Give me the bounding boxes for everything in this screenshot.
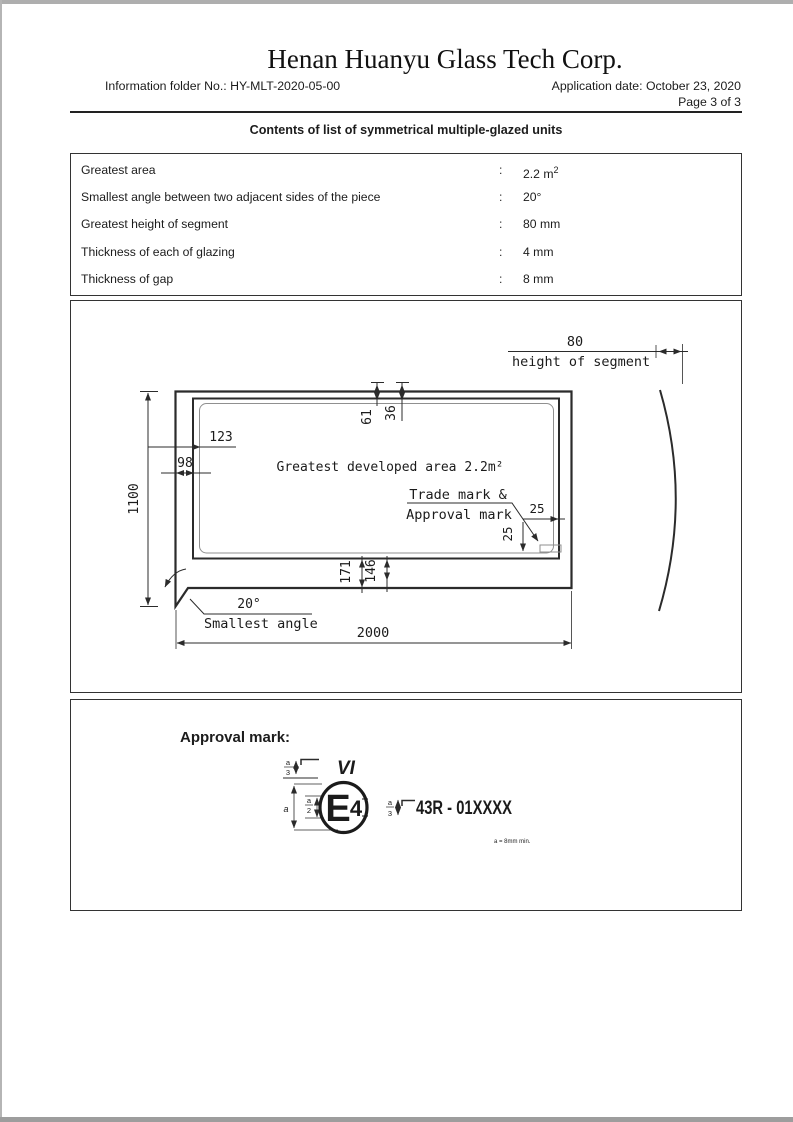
row-value: 8 mm — [523, 266, 553, 292]
dim-98-label: 98 — [177, 456, 193, 471]
fraction-denominator: 3 — [286, 768, 290, 777]
trade-mark-label-line1: Trade mark & — [409, 487, 507, 503]
document-subtitle: Contents of list of symmetrical multiple… — [70, 123, 742, 137]
dim-a-label: a — [283, 804, 288, 814]
company-title: Henan Huanyu Glass Tech Corp. — [120, 44, 770, 75]
roman-numeral-vi: VI — [337, 758, 356, 779]
developed-area-label: Greatest developed area 2.2m² — [277, 460, 504, 475]
row-value: 2.2 m2 — [523, 157, 559, 187]
dim-146-label: 146 — [364, 559, 379, 582]
table-row: Thickness of gap : 8 mm — [71, 266, 741, 292]
page-number: Page 3 of 3 — [678, 95, 741, 109]
row-label: Thickness of gap — [81, 272, 173, 286]
technical-drawing: 1100 123 98 61 36 Greatest developed are… — [70, 300, 742, 693]
table-row: Thickness of each of glazing : 4 mm — [71, 239, 741, 265]
e-mark-circle-group: E 4 — [320, 783, 368, 833]
dim-25v-label: 25 — [500, 526, 515, 541]
dim-bottom-146: 146 — [364, 556, 387, 592]
row-label: Greatest area — [81, 163, 156, 177]
row-value: 4 mm — [523, 239, 553, 265]
segment-arc — [659, 390, 676, 611]
e-mark-number: 4 — [350, 796, 363, 821]
document-page: Henan Huanyu Glass Tech Corp. Informatio… — [0, 0, 793, 1122]
footnote-a-min: a = 8mm min. — [494, 839, 531, 845]
fraction-a3-top: a 3 — [283, 758, 319, 778]
approval-mark-diagram: a 3 VI a a 2 E 4 — [70, 699, 742, 911]
glass-labels: Greatest developed area 2.2m² Trade mark… — [277, 460, 512, 523]
trade-mark-placeholder — [540, 545, 561, 552]
row-label: Thickness of each of glazing — [81, 245, 235, 259]
fraction-numerator: a — [286, 758, 291, 767]
row-value: 80 mm — [523, 211, 560, 237]
fraction-a3-right: a 3 — [386, 798, 415, 818]
regulation-number: 43R - 01XXXX — [416, 798, 512, 819]
application-date: Application date: October 23, 2020 — [552, 79, 741, 93]
trade-mark-label-line2: Approval mark — [406, 507, 512, 523]
dim-2000-label: 2000 — [357, 625, 390, 641]
dim-1100-label: 1100 — [127, 483, 142, 514]
value-superscript: 2 — [553, 165, 558, 175]
dim-80-label: 80 — [567, 334, 583, 350]
dim-mark-25v: 25 — [500, 522, 523, 551]
info-folder-number: Information folder No.: HY-MLT-2020-05-0… — [105, 79, 340, 93]
header-rule — [70, 111, 742, 113]
table-row: Greatest area : 2.2 m2 — [71, 157, 741, 183]
row-value: 20° — [523, 184, 541, 210]
table-row: Smallest angle between two adjacent side… — [71, 184, 741, 210]
row-label: Smallest angle between two adjacent side… — [81, 190, 380, 204]
fraction-numerator: a — [388, 798, 393, 807]
page-left-edge — [0, 0, 2, 1122]
dim-171-label: 171 — [339, 560, 354, 583]
height-of-segment-label: height of segment — [512, 354, 650, 370]
fraction-denominator: 3 — [388, 809, 392, 818]
angle-value-label: 20° — [237, 597, 260, 612]
e-mark-letter: E — [325, 788, 350, 830]
row-separator: : — [499, 157, 502, 183]
fraction-denominator: 2 — [307, 806, 311, 815]
page-bottom-edge — [0, 1117, 793, 1122]
table-row: Greatest height of segment : 80 mm — [71, 211, 741, 237]
smallest-angle-label: Smallest angle — [204, 616, 318, 632]
row-separator: : — [499, 239, 502, 265]
dim-25h-label: 25 — [529, 501, 544, 516]
row-separator: : — [499, 266, 502, 292]
row-label: Greatest height of segment — [81, 217, 228, 231]
smallest-angle-callout: 20° Smallest angle — [165, 569, 318, 632]
dim-61-label: 61 — [360, 409, 375, 425]
row-separator: : — [499, 184, 502, 210]
dim-inset-98: 98 — [161, 456, 211, 473]
height-of-segment-group: 80 height of segment — [508, 334, 688, 611]
dim-123-label: 123 — [209, 430, 232, 445]
dim-36-label: 36 — [384, 405, 399, 421]
spec-table: Greatest area : 2.2 m2 Smallest angle be… — [70, 153, 742, 296]
row-separator: : — [499, 211, 502, 237]
page-top-edge — [0, 0, 793, 4]
dim-height-1100: 1100 — [127, 392, 158, 607]
dim-top-36: 36 — [384, 383, 409, 422]
fraction-numerator: a — [307, 796, 312, 805]
